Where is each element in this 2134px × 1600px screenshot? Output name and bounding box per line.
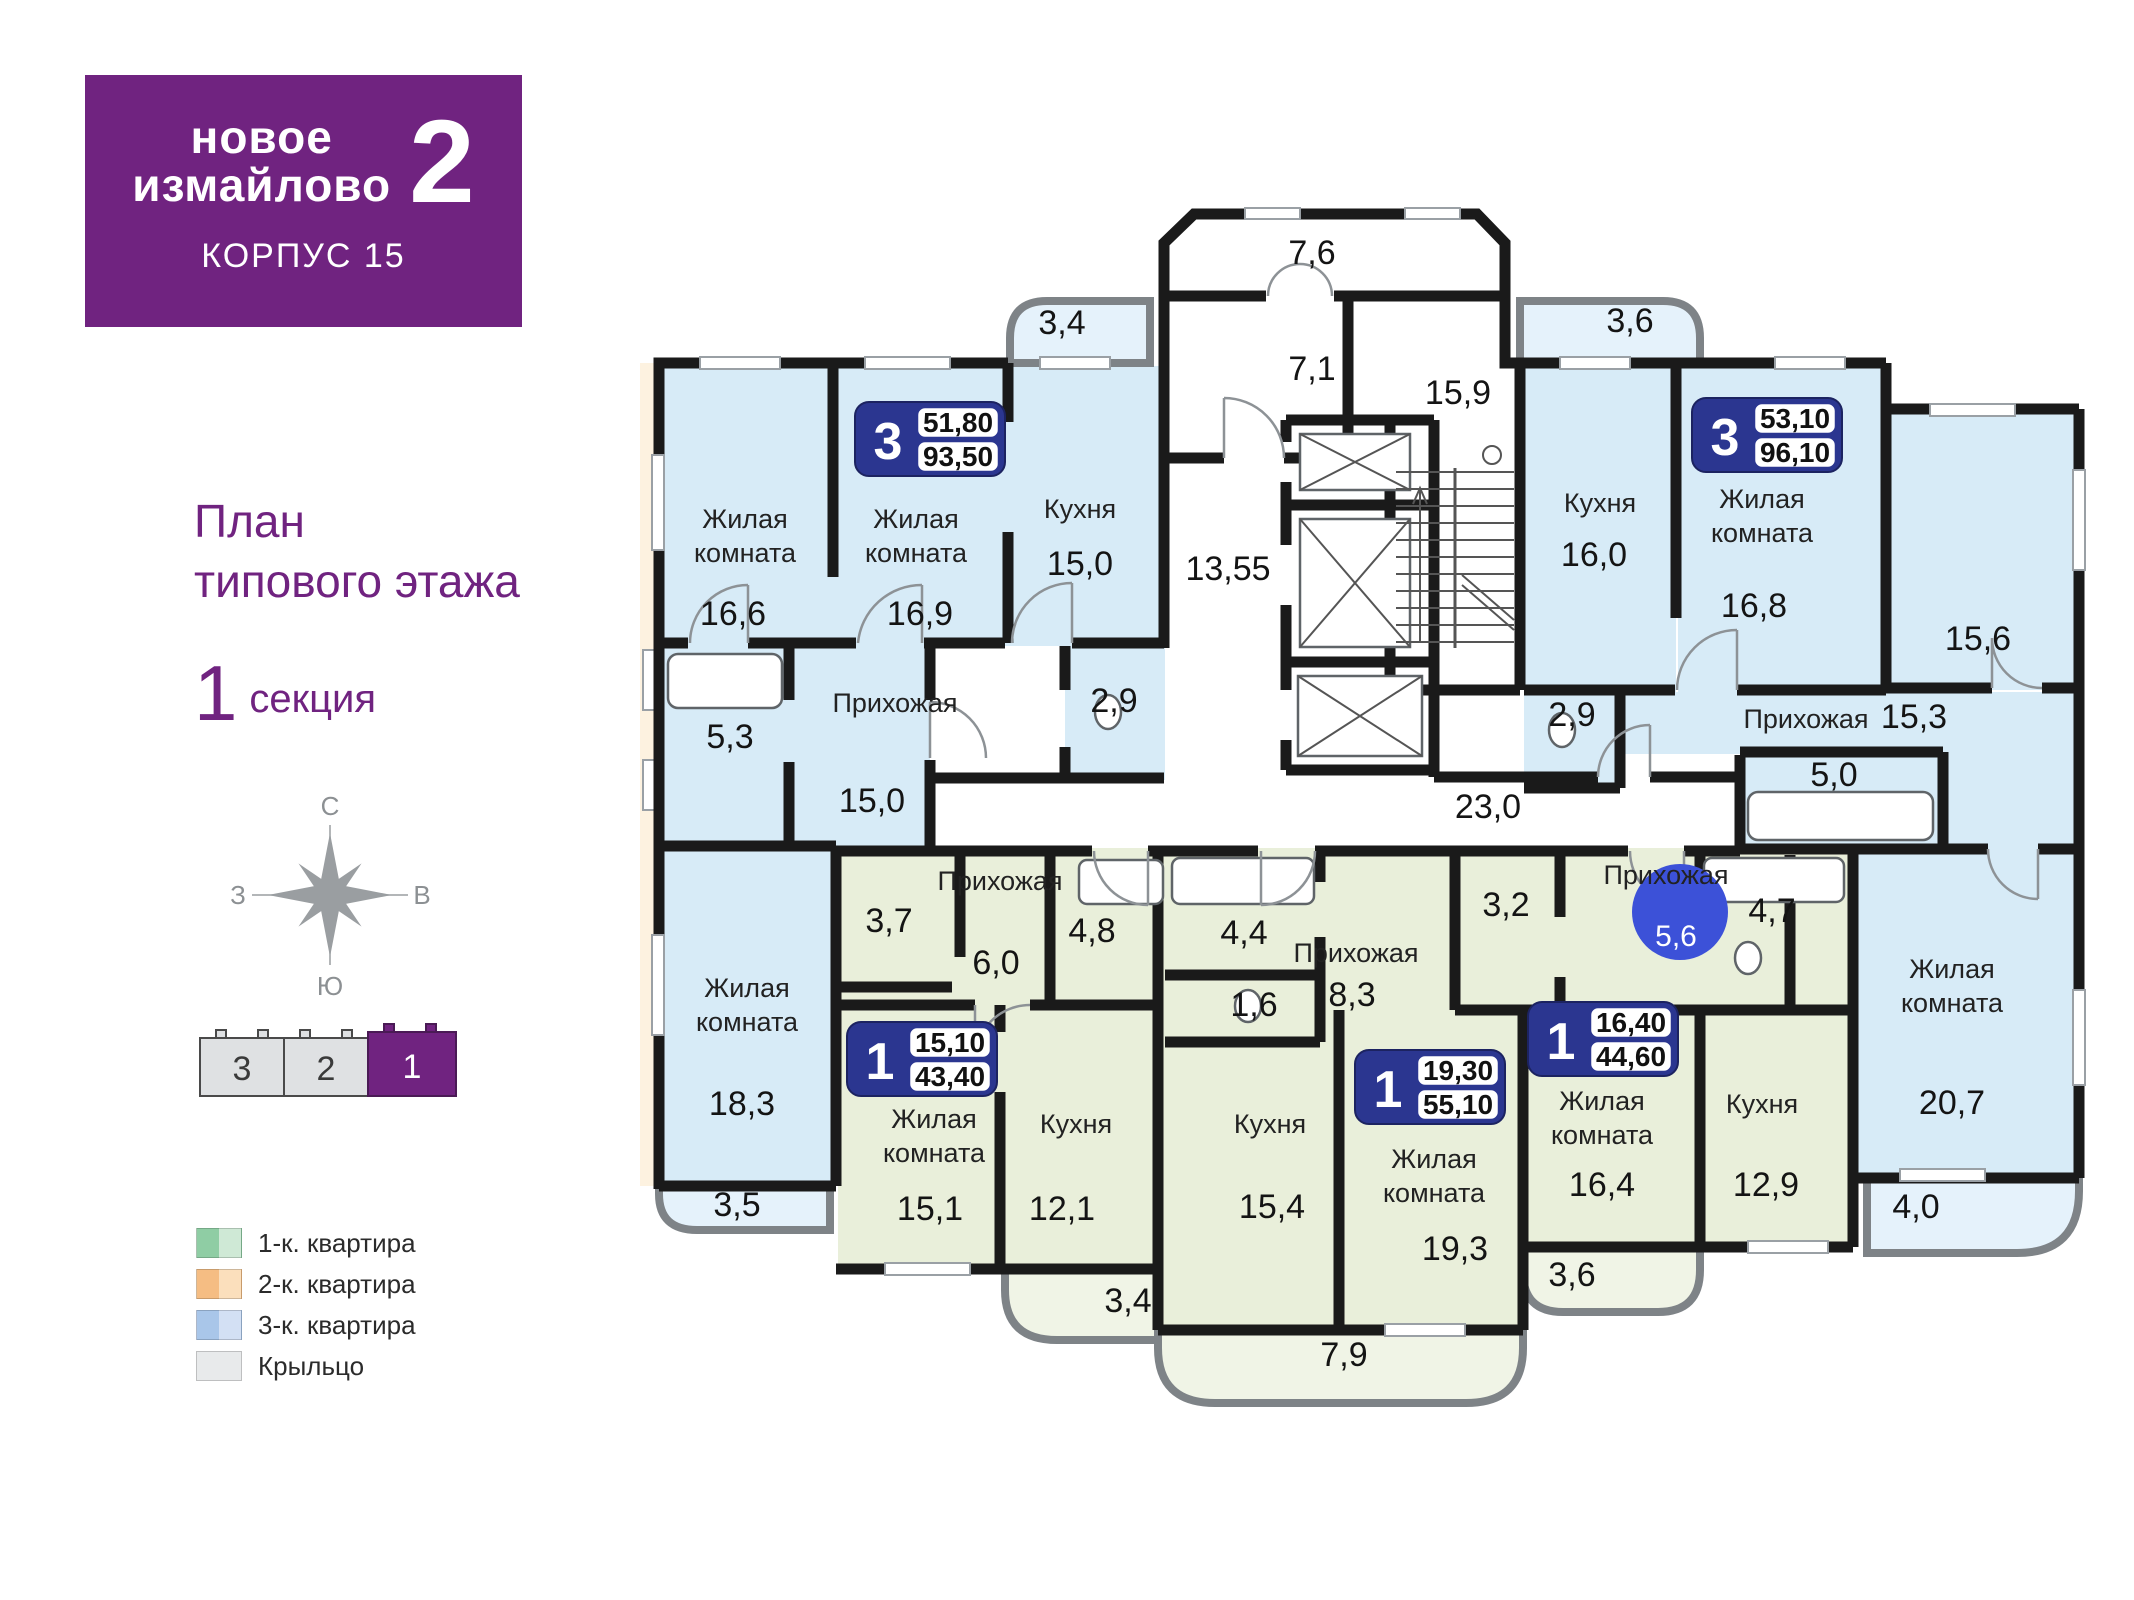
svg-text:19,30: 19,30 <box>1423 1055 1493 1086</box>
svg-text:Кухня: Кухня <box>1044 494 1116 524</box>
svg-text:15,3: 15,3 <box>1881 698 1947 736</box>
svg-text:комната: комната <box>1551 1120 1654 1150</box>
neighbor-fixture <box>643 760 655 810</box>
svg-text:Жилая: Жилая <box>704 973 789 1003</box>
svg-text:комната: комната <box>1711 518 1814 548</box>
compass-icon: С Ю З В <box>230 791 431 1001</box>
svg-text:комната: комната <box>1901 988 2004 1018</box>
svg-text:16,9: 16,9 <box>887 595 953 633</box>
svg-text:15,10: 15,10 <box>915 1027 985 1058</box>
svg-text:4,0: 4,0 <box>1892 1188 1939 1226</box>
svg-text:3: 3 <box>1711 409 1740 467</box>
section-minimap: 3 2 1 <box>200 1024 456 1096</box>
svg-text:3,4: 3,4 <box>1038 304 1085 342</box>
svg-text:3,6: 3,6 <box>1606 302 1653 340</box>
svg-text:15,4: 15,4 <box>1239 1188 1305 1226</box>
room-region <box>1002 1008 1160 1271</box>
svg-text:15,0: 15,0 <box>1047 545 1113 583</box>
svg-text:Жилая: Жилая <box>1909 954 1994 984</box>
svg-text:Кухня: Кухня <box>1234 1109 1306 1139</box>
svg-text:1: 1 <box>1547 1013 1576 1071</box>
staircase <box>1396 446 1514 648</box>
svg-text:8,3: 8,3 <box>1328 976 1375 1014</box>
room-region <box>1524 366 1676 692</box>
svg-text:1: 1 <box>1374 1061 1403 1119</box>
svg-text:1: 1 <box>866 1033 895 1091</box>
svg-text:5,0: 5,0 <box>1810 756 1857 794</box>
svg-text:Жилая: Жилая <box>1559 1086 1644 1116</box>
svg-text:2,9: 2,9 <box>1548 696 1595 734</box>
svg-text:15,1: 15,1 <box>897 1190 963 1228</box>
svg-text:44,60: 44,60 <box>1596 1041 1666 1072</box>
svg-text:Прихожая: Прихожая <box>937 866 1062 896</box>
svg-text:16,8: 16,8 <box>1721 587 1787 625</box>
apartment-badge-1k-left[interactable]: 1 15,10 43,40 <box>847 1022 997 1096</box>
svg-text:15,6: 15,6 <box>1945 620 2011 658</box>
svg-text:Ю: Ю <box>317 971 343 1001</box>
svg-text:комната: комната <box>1383 1178 1486 1208</box>
neighbor-fixture <box>643 650 655 710</box>
svg-text:комната: комната <box>696 1007 799 1037</box>
svg-text:16,40: 16,40 <box>1596 1007 1666 1038</box>
svg-text:13,55: 13,55 <box>1185 550 1270 588</box>
svg-text:16,4: 16,4 <box>1569 1166 1635 1204</box>
svg-text:6,0: 6,0 <box>972 944 1019 982</box>
svg-text:12,1: 12,1 <box>1029 1190 1095 1228</box>
svg-text:4,7: 4,7 <box>1748 892 1795 930</box>
svg-text:Жилая: Жилая <box>891 1104 976 1134</box>
svg-text:53,10: 53,10 <box>1760 403 1830 434</box>
svg-text:комната: комната <box>865 538 968 568</box>
svg-text:16,6: 16,6 <box>700 595 766 633</box>
svg-text:2: 2 <box>317 1050 336 1088</box>
svg-text:Кухня: Кухня <box>1040 1109 1112 1139</box>
svg-text:93,50: 93,50 <box>923 441 993 472</box>
svg-text:В: В <box>413 880 430 910</box>
floor-plan-svg: С Ю З В 3 2 1 <box>0 0 2134 1600</box>
apartment-badge-1k-mid[interactable]: 1 19,30 55,10 <box>1355 1050 1505 1124</box>
svg-text:Жилая: Жилая <box>702 504 787 534</box>
svg-text:Жилая: Жилая <box>873 504 958 534</box>
svg-text:3,5: 3,5 <box>713 1186 760 1224</box>
svg-text:23,0: 23,0 <box>1455 788 1521 826</box>
svg-text:4,4: 4,4 <box>1220 914 1267 952</box>
svg-text:55,10: 55,10 <box>1423 1089 1493 1120</box>
svg-text:Жилая: Жилая <box>1719 484 1804 514</box>
svg-text:З: З <box>230 880 246 910</box>
svg-text:7,1: 7,1 <box>1288 350 1335 388</box>
svg-text:2,9: 2,9 <box>1090 682 1137 720</box>
svg-text:С: С <box>321 791 340 821</box>
svg-text:7,6: 7,6 <box>1288 234 1335 272</box>
svg-text:3,7: 3,7 <box>865 902 912 940</box>
svg-text:16,0: 16,0 <box>1561 536 1627 574</box>
svg-text:Прихожая: Прихожая <box>832 688 957 718</box>
svg-text:3,2: 3,2 <box>1482 886 1529 924</box>
svg-text:51,80: 51,80 <box>923 407 993 438</box>
room-region <box>1702 1012 1852 1249</box>
svg-text:18,3: 18,3 <box>709 1085 775 1123</box>
svg-text:комната: комната <box>694 538 797 568</box>
svg-text:12,9: 12,9 <box>1733 1166 1799 1204</box>
svg-text:1: 1 <box>403 1048 422 1086</box>
svg-text:19,3: 19,3 <box>1422 1230 1488 1268</box>
svg-text:4,8: 4,8 <box>1068 912 1115 950</box>
room-region <box>1160 1012 1339 1332</box>
svg-text:Жилая: Жилая <box>1391 1144 1476 1174</box>
svg-text:43,40: 43,40 <box>915 1061 985 1092</box>
svg-text:Прихожая: Прихожая <box>1603 860 1728 890</box>
svg-text:3: 3 <box>874 413 903 471</box>
svg-text:Кухня: Кухня <box>1564 488 1636 518</box>
svg-text:Прихожая: Прихожая <box>1293 938 1418 968</box>
svg-text:96,10: 96,10 <box>1760 437 1830 468</box>
svg-text:1,6: 1,6 <box>1230 986 1277 1024</box>
apartment-badge-3k-right[interactable]: 3 53,10 96,10 <box>1692 398 1842 472</box>
svg-text:5,6: 5,6 <box>1655 920 1697 953</box>
elevators <box>1298 434 1422 756</box>
apartment-badge-1k-right[interactable]: 1 16,40 44,60 <box>1528 1002 1678 1076</box>
svg-text:15,9: 15,9 <box>1425 374 1491 412</box>
apartment-badge-3k-left[interactable]: 3 51,80 93,50 <box>855 402 1005 476</box>
svg-text:Прихожая: Прихожая <box>1743 704 1868 734</box>
svg-text:3: 3 <box>233 1050 252 1088</box>
svg-text:15,0: 15,0 <box>839 782 905 820</box>
svg-text:Кухня: Кухня <box>1726 1089 1798 1119</box>
svg-text:7,9: 7,9 <box>1320 1336 1367 1374</box>
svg-text:3,4: 3,4 <box>1104 1282 1151 1320</box>
svg-text:5,3: 5,3 <box>706 718 753 756</box>
svg-text:20,7: 20,7 <box>1919 1084 1985 1122</box>
svg-text:комната: комната <box>883 1138 986 1168</box>
svg-text:3,6: 3,6 <box>1548 1256 1595 1294</box>
